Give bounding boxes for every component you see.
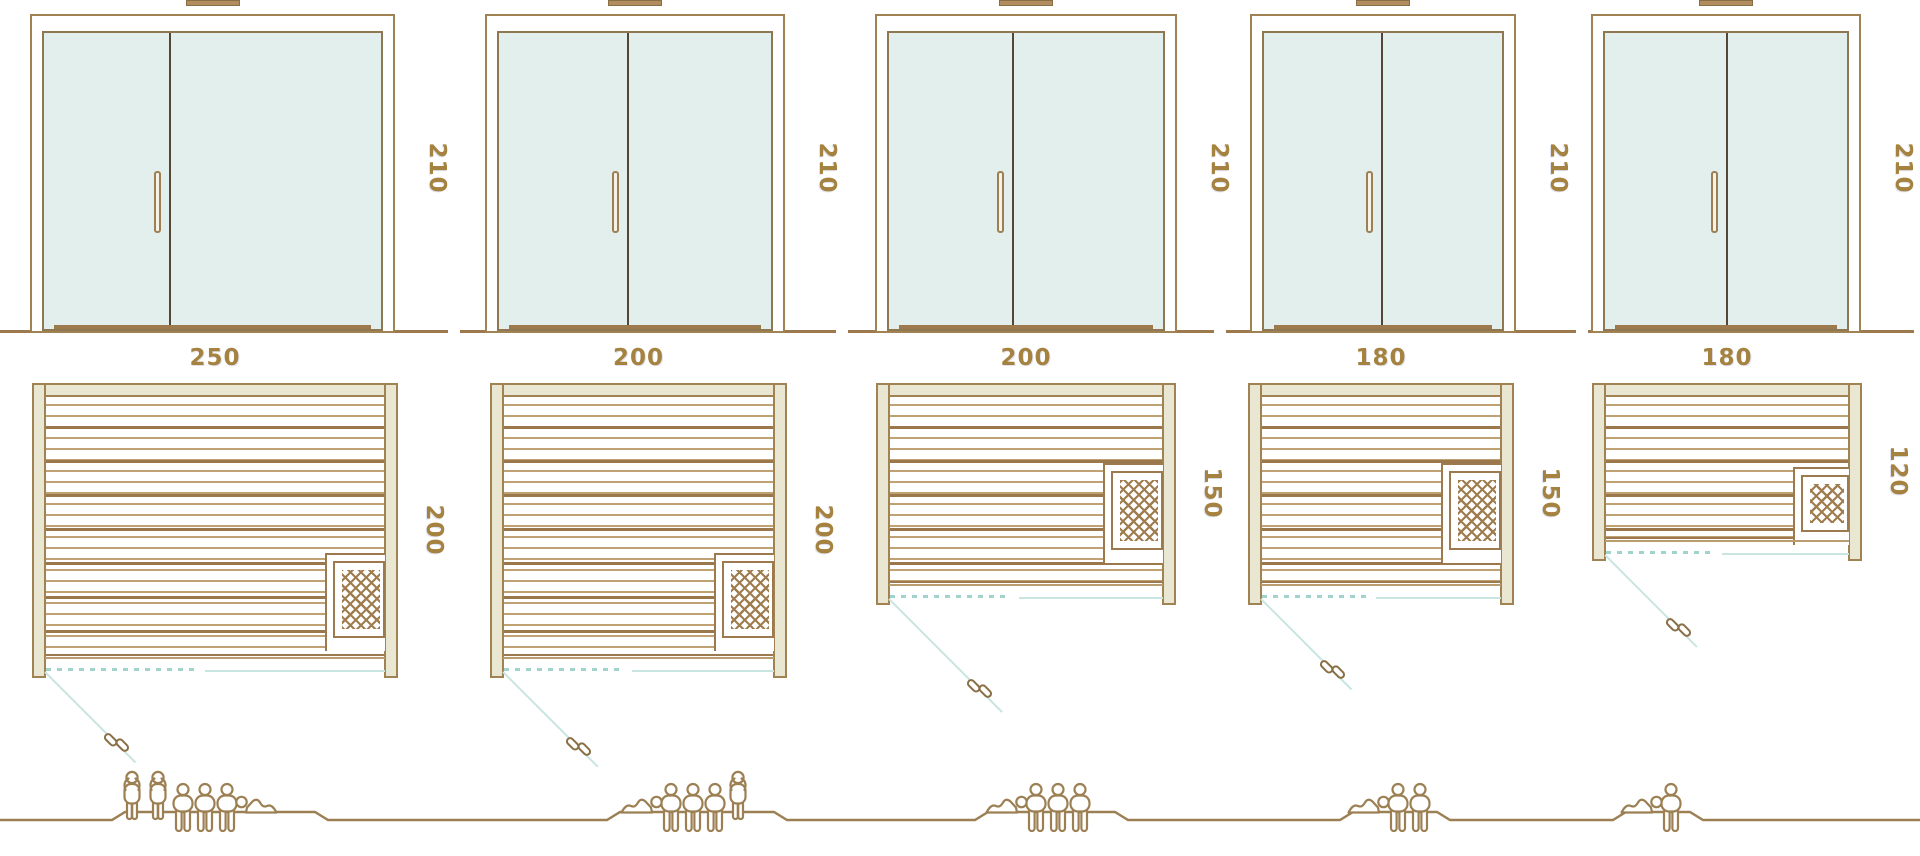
heater-stove-icon [1810,484,1844,523]
sauna-front-view [1250,14,1516,333]
capacity-figures-strip [0,745,1920,856]
person-sitting-icon [1027,784,1046,831]
door-handle [1711,171,1718,233]
door-divider [1381,33,1383,329]
person-sitting-icon [1071,784,1090,831]
roof-cap [1699,0,1753,6]
plan-top-wall [1248,383,1514,397]
plan-left-wall [1592,383,1606,561]
glass-double-door [42,31,383,331]
heater-guard [1449,471,1501,550]
glass-double-door [1262,31,1504,331]
door-sill [1274,325,1492,329]
glass-double-door [887,31,1165,331]
front-bench-edge [889,584,1163,589]
door-sill [509,325,761,329]
person-lying-icon [622,797,662,813]
door-handle [612,171,619,233]
door-divider [1012,33,1014,329]
door-divider [1726,33,1728,329]
plan-width-label: 200 [490,345,787,371]
door-opening-dashed-line [1262,595,1368,598]
plan-right-wall [1848,383,1862,561]
door-height-label: 210 [1890,138,1916,198]
sauna-plan-view [1248,383,1514,605]
plan-right-wall [1162,383,1176,605]
person-sitting-icon [174,784,193,831]
plan-depth-label: 200 [421,500,447,560]
plan-width-label: 180 [1592,345,1862,371]
heater-enclosure [1793,467,1849,545]
door-opening-dashed-line [890,595,1011,598]
front-bench-edge [1605,540,1849,545]
glass-double-door [1603,31,1849,331]
roof-cap [1356,0,1410,6]
heater-guard [1801,475,1849,532]
glass-wall-line [205,670,385,672]
door-sill [899,325,1153,329]
person-sitting-icon [1411,784,1430,831]
person-sitting-icon [218,784,237,831]
door-height-label: 210 [1545,138,1571,198]
plan-depth-label: 200 [810,500,836,560]
sauna-front-view [1591,14,1861,333]
person-lying-icon [987,797,1027,813]
door-handle [154,171,161,233]
plan-left-wall [32,383,46,678]
glass-double-door [497,31,773,331]
door-height-label: 210 [424,138,450,198]
heater-guard [722,561,774,638]
sauna-plan-view [1592,383,1862,561]
heater-stove-icon [1458,480,1496,541]
plan-left-wall [490,383,504,678]
door-height-label: 210 [1206,138,1232,198]
person-sitting-icon [1389,784,1408,831]
plan-left-wall [876,383,890,605]
sauna-front-view [30,14,395,333]
sauna-size-diagram: 210 250 200 [0,0,1920,856]
heater-stove-icon [342,570,380,629]
person-lying-icon [236,797,276,813]
plan-top-wall [490,383,787,397]
plan-width-label: 200 [876,345,1176,371]
plan-top-wall [32,383,398,397]
heater-stove-icon [1120,480,1158,541]
heater-enclosure [1441,463,1501,563]
person-sitting-icon [1049,784,1068,831]
door-handle [997,171,1004,233]
door-opening-dashed-line [1606,551,1714,554]
sauna-plan-view [876,383,1176,605]
heater-enclosure [714,553,774,651]
person-sitting-icon [706,784,725,831]
plan-depth-label: 150 [1537,463,1563,523]
person-sitting-icon [196,784,215,831]
plan-depth-label: 120 [1885,441,1911,501]
person-standing-icon [151,772,166,819]
glass-wall-line [632,670,774,672]
front-bench-edge [45,657,385,662]
door-sill [1615,325,1837,329]
roof-cap [186,0,240,6]
person-sitting-icon [684,784,703,831]
plan-right-wall [773,383,787,678]
person-lying-icon [1349,797,1389,813]
door-handle [1366,171,1373,233]
plan-right-wall [384,383,398,678]
sauna-plan-view [490,383,787,678]
glass-wall-line [1376,597,1501,599]
heater-guard [1111,471,1163,550]
person-lying-icon [1622,797,1662,813]
heater-enclosure [325,553,385,651]
person-sitting-icon [662,784,681,831]
door-opening-dashed-line [46,668,197,671]
plan-right-wall [1500,383,1514,605]
glass-wall-line [1019,597,1163,599]
roof-cap [608,0,662,6]
person-sitting-icon [1662,784,1681,831]
plan-top-wall [876,383,1176,397]
sauna-front-view [485,14,785,333]
plan-top-wall [1592,383,1862,397]
front-bench-edge [1261,584,1501,589]
plan-left-wall [1248,383,1262,605]
door-sill [54,325,371,329]
door-height-label: 210 [814,138,840,198]
heater-enclosure [1103,463,1163,563]
roof-cap [999,0,1053,6]
person-standing-icon [731,772,746,819]
front-bench-edge [503,657,774,662]
plan-width-label: 250 [32,345,398,371]
door-opening-dashed-line [504,668,624,671]
door-divider [169,33,171,329]
plan-depth-label: 150 [1199,463,1225,523]
heater-stove-icon [731,570,769,629]
glass-wall-line [1722,553,1850,555]
sauna-plan-view [32,383,398,678]
person-standing-icon [125,772,140,819]
sauna-front-view [875,14,1177,333]
plan-width-label: 180 [1248,345,1514,371]
door-divider [627,33,629,329]
heater-guard [333,561,385,638]
